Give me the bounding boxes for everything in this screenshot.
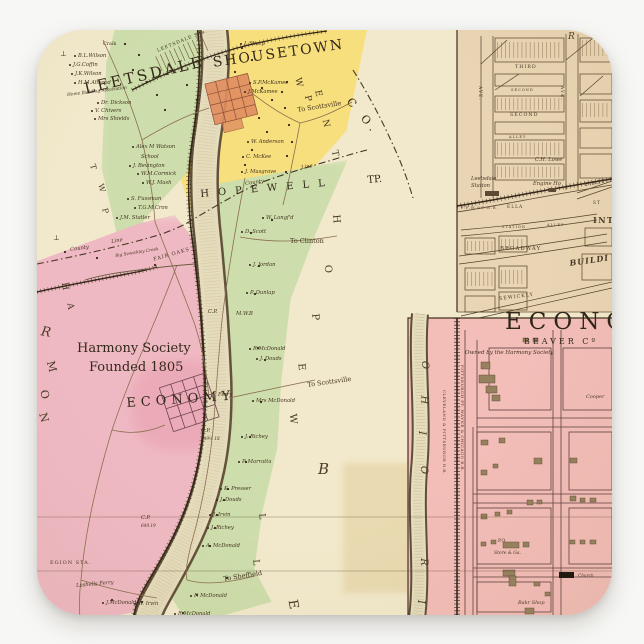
map-label: D. Scott xyxy=(245,230,266,236)
avenue-label: AVE. xyxy=(477,86,481,101)
map-label: Alex M Watson xyxy=(136,145,175,151)
scatter-letter: R xyxy=(568,33,575,42)
avenue-label: AVE. xyxy=(559,86,563,101)
scatter-letter: E xyxy=(295,363,306,371)
river-letter: R xyxy=(418,558,428,566)
map-label: J. Irvin xyxy=(213,513,230,519)
map-label: J.G.Coffin xyxy=(73,63,98,69)
survey-mark: ⊥ xyxy=(60,51,67,58)
station-label: Station xyxy=(471,184,490,189)
scatter-letter: L xyxy=(256,513,265,520)
scatter-letter: P xyxy=(309,313,320,321)
map-label: W.M.Cormick xyxy=(141,172,176,178)
map-label: J. Musgrave xyxy=(245,170,276,176)
harmony-founded-label: Founded 1805 xyxy=(89,361,183,374)
street-label: SECOND xyxy=(510,114,538,119)
river-letter: I xyxy=(416,431,426,435)
economy-plan-title: ECONOMY xyxy=(505,311,612,334)
map-label: School xyxy=(141,155,159,161)
map-label: R.McDonald xyxy=(178,612,210,615)
map-label: A. McDonald xyxy=(206,544,240,550)
scatter-letter: W xyxy=(292,77,303,88)
map-label: P. Marratta xyxy=(242,460,271,466)
engine-house-label: Engine Ho xyxy=(533,182,561,187)
map-label: W.J. Mash xyxy=(146,181,171,187)
economy-plan-credit: Owned by the Harmony Society xyxy=(465,350,554,356)
plan-label: P.O. xyxy=(498,540,506,545)
plan-label: Store & Ga. xyxy=(494,552,521,557)
river-letter: H xyxy=(418,396,428,405)
map-label: J. Jordan xyxy=(253,263,275,269)
plan-label: Bakr Shop xyxy=(518,601,545,607)
map-label: C.P. xyxy=(208,310,218,316)
plan-label: Cooper xyxy=(586,395,604,401)
railroad-fair-oaks xyxy=(37,267,157,292)
map-label: J. Sharp xyxy=(244,42,265,48)
street-label: SECOND xyxy=(511,89,534,93)
river-letter: O xyxy=(418,466,428,474)
map-label: P. Dunlap xyxy=(250,291,275,297)
scatter-letter: N xyxy=(320,119,330,129)
map-label: EGION STA. xyxy=(50,561,91,567)
map-label: S. Fussman xyxy=(131,197,161,203)
economy-plan-panel xyxy=(408,314,612,615)
river-letter: I xyxy=(415,600,425,604)
street-label: ALLEY xyxy=(509,136,526,140)
map-label: To Clinton xyxy=(290,238,324,245)
map-sticker: Craik B.L.Wilson J.G.Coffin J.K.Wilson H… xyxy=(37,30,612,615)
map-label: C.P. xyxy=(141,516,151,522)
product-photo: Craik B.L.Wilson J.G.Coffin J.K.Wilson H… xyxy=(0,0,644,644)
river-letter: O xyxy=(419,361,429,369)
tp-label: TP. xyxy=(367,175,382,186)
survey-mark: ⊥ xyxy=(53,235,60,242)
map-label: Mrs McDonald xyxy=(256,399,295,405)
map-label: B.L.Wilson xyxy=(78,54,106,60)
economy-plan-subtitle: BEAVER Cº xyxy=(524,338,598,346)
map-label: W. Langf'd xyxy=(266,216,294,222)
map-label: J.McKamee xyxy=(248,90,278,96)
street-label: ELLA xyxy=(507,206,523,210)
map-label: C. McKee xyxy=(246,155,271,161)
map-label: J. Douds xyxy=(260,357,282,363)
railroad-label: P.F.W.&C.R.R. xyxy=(461,207,499,211)
map-label: J. Douds xyxy=(220,498,242,504)
map-label: T.G.M.Cron xyxy=(138,206,168,212)
big-sewickley-creek xyxy=(85,264,195,280)
map-label: C.P. xyxy=(201,429,211,435)
railroad-name: CLEVELAND & PITTSBURGH R.R. xyxy=(442,390,446,475)
map-label: Dr. Dickson xyxy=(101,101,131,107)
map-label: S.P.McKamee xyxy=(253,81,288,87)
street-label: ALLEY xyxy=(547,224,564,228)
scatter-letter: A xyxy=(64,303,74,311)
caption-fragment: INTE xyxy=(593,216,612,224)
map-label: J. Bevington xyxy=(133,164,165,170)
economy-plan-river xyxy=(417,314,421,615)
street-label: ST xyxy=(593,202,601,206)
scatter-letter: B xyxy=(318,462,329,477)
map-label: J.M. Statler xyxy=(120,216,150,222)
plan-label: Church xyxy=(578,574,594,579)
map-label: K. Presser xyxy=(224,487,251,493)
map-label: W. Irvin xyxy=(138,602,158,608)
scatter-letter: W xyxy=(287,413,298,424)
map-label: 649.19 xyxy=(141,524,156,529)
harmony-society-label: Harmony Society xyxy=(77,342,191,355)
railroad-name: PITTSBURGH FT. WAYNE & CHICAGO R.R. xyxy=(460,365,464,472)
church-block xyxy=(559,572,574,578)
scatter-letter: H xyxy=(330,214,341,224)
scatter-letter: H xyxy=(59,282,69,291)
station-label: Leetsdale xyxy=(471,177,496,182)
map-label: J. Richey xyxy=(245,435,268,441)
map-label: Craik xyxy=(103,42,116,47)
map-label: M.W.B xyxy=(236,312,253,318)
map-label: V. Chivers xyxy=(95,109,121,115)
map-label: W. Anderson xyxy=(251,140,284,146)
map-label: R.McDonald xyxy=(253,347,285,353)
owner-label: C.H. Lowe xyxy=(535,158,562,163)
street-label: THIRD xyxy=(515,66,537,71)
street-label: BROADWAY xyxy=(500,247,541,252)
street-label: STATION xyxy=(502,226,526,230)
map-label: J. Richey xyxy=(211,526,234,532)
scatter-letter: R xyxy=(40,325,52,340)
map-label: Mrs Shields xyxy=(98,117,129,123)
scatter-letter: L xyxy=(250,559,259,566)
map-label: 649½ 18 xyxy=(201,437,220,442)
map-label: J.McDonald xyxy=(106,601,136,607)
scatter-letter: O xyxy=(322,264,333,273)
map-label: F. McDonald xyxy=(194,594,227,600)
